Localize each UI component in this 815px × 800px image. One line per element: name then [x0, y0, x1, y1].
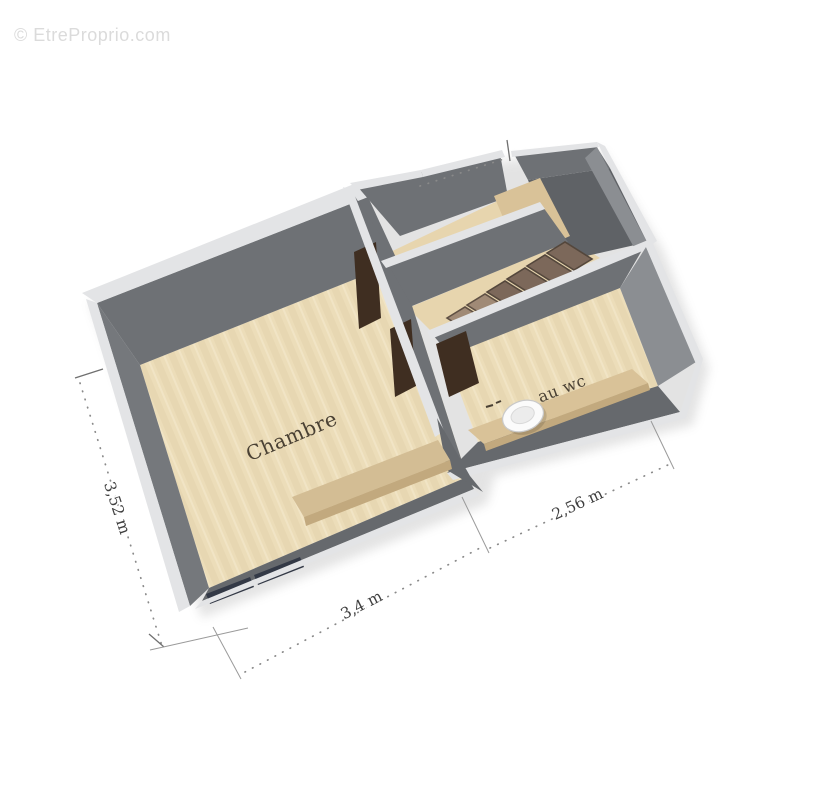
- dimension-label-right: 2,56 m: [549, 484, 606, 523]
- floor-plan-page: 3,52 m 3,4 m 2,56 m Chambre au wc © Etre…: [0, 0, 815, 800]
- dimension-label-bottom: 3,4 m: [338, 587, 386, 623]
- watermark: © EtreProprio.com: [14, 25, 171, 45]
- floor-plan-3d: 3,52 m 3,4 m 2,56 m Chambre au wc © Etre…: [0, 0, 815, 800]
- dimension-label-left: 3,52 m: [100, 479, 134, 536]
